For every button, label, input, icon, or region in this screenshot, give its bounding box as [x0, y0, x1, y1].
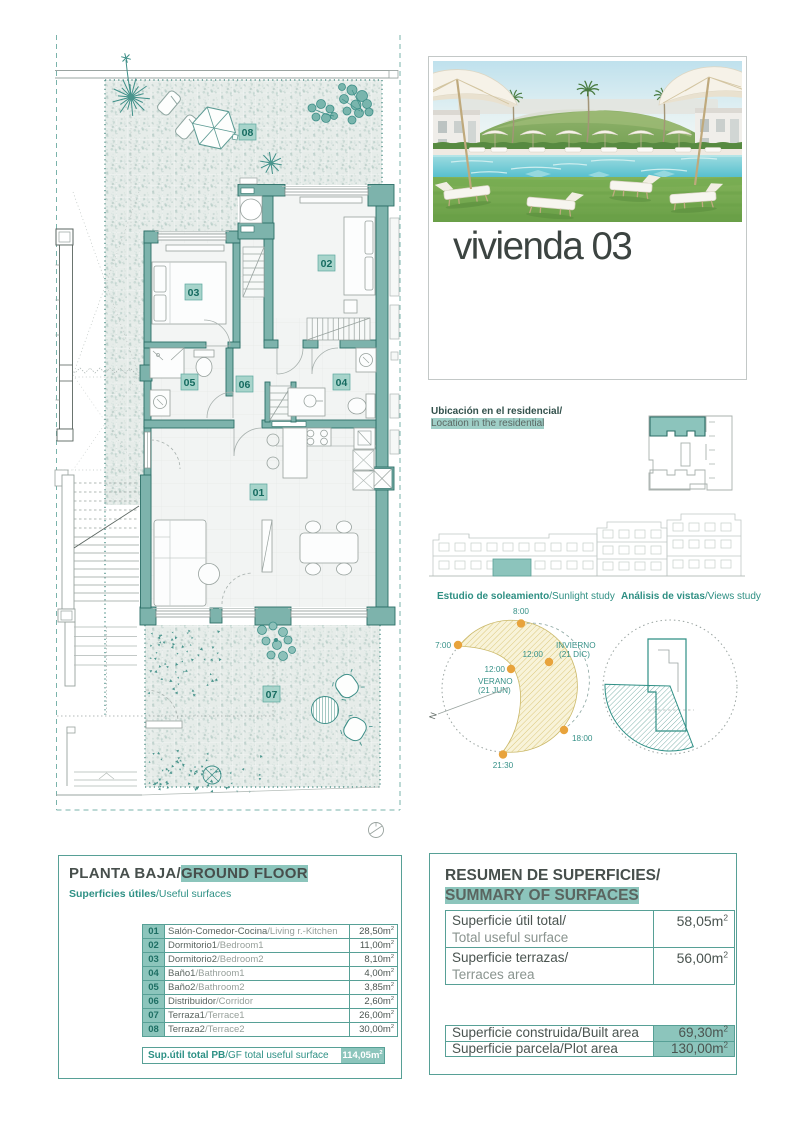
svg-text:N: N — [427, 711, 439, 721]
svg-text:INVIERNO: INVIERNO — [556, 641, 596, 650]
svg-text:21:30: 21:30 — [493, 761, 514, 770]
svg-text:(21 JUN): (21 JUN) — [478, 686, 511, 695]
svg-text:03: 03 — [188, 287, 200, 299]
svg-text:18:00: 18:00 — [572, 734, 593, 743]
svg-text:7:00: 7:00 — [435, 641, 451, 650]
svg-text:12:00: 12:00 — [523, 650, 544, 659]
svg-text:12:00: 12:00 — [485, 665, 506, 674]
svg-text:VERANO: VERANO — [478, 677, 513, 686]
svg-text:(21 DIC): (21 DIC) — [559, 650, 590, 659]
svg-text:07: 07 — [266, 689, 278, 701]
svg-text:04: 04 — [336, 377, 348, 389]
svg-text:05: 05 — [184, 377, 196, 389]
svg-text:06: 06 — [239, 379, 251, 391]
svg-text:8:00: 8:00 — [513, 607, 529, 616]
svg-text:01: 01 — [253, 487, 265, 499]
svg-text:08: 08 — [242, 127, 254, 139]
svg-text:02: 02 — [321, 258, 333, 270]
